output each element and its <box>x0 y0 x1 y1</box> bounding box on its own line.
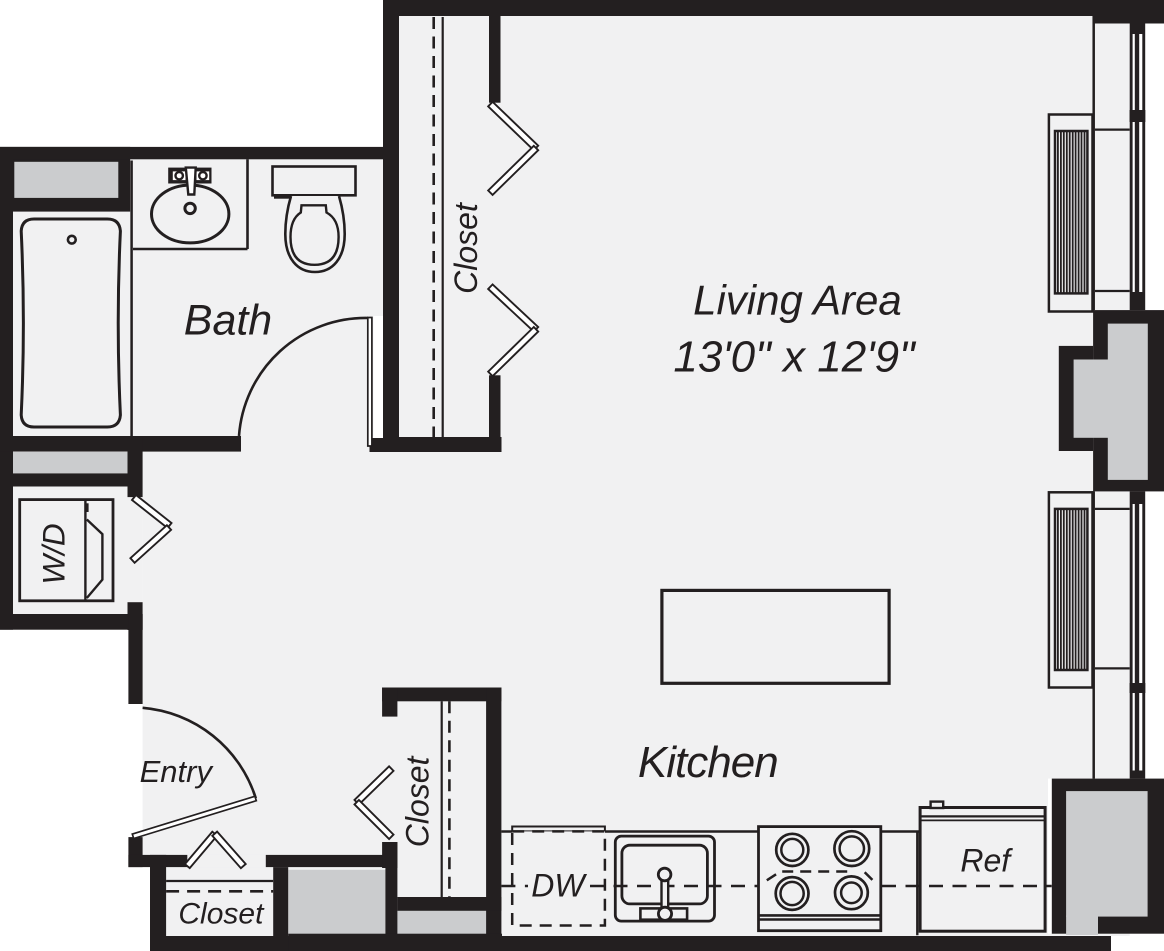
svg-text:Ref: Ref <box>960 843 1013 879</box>
svg-text:Kitchen: Kitchen <box>638 738 778 787</box>
svg-text:Closet: Closet <box>400 755 436 847</box>
svg-text:W/D: W/D <box>36 523 72 584</box>
svg-text:Living Area: Living Area <box>693 277 902 324</box>
svg-text:Bath: Bath <box>184 296 272 344</box>
svg-text:Entry: Entry <box>140 754 215 789</box>
svg-text:DW: DW <box>531 868 587 904</box>
svg-text:Closet: Closet <box>178 897 265 930</box>
svg-text:13'0" x 12'9": 13'0" x 12'9" <box>673 332 917 381</box>
svg-text:Closet: Closet <box>448 202 484 294</box>
